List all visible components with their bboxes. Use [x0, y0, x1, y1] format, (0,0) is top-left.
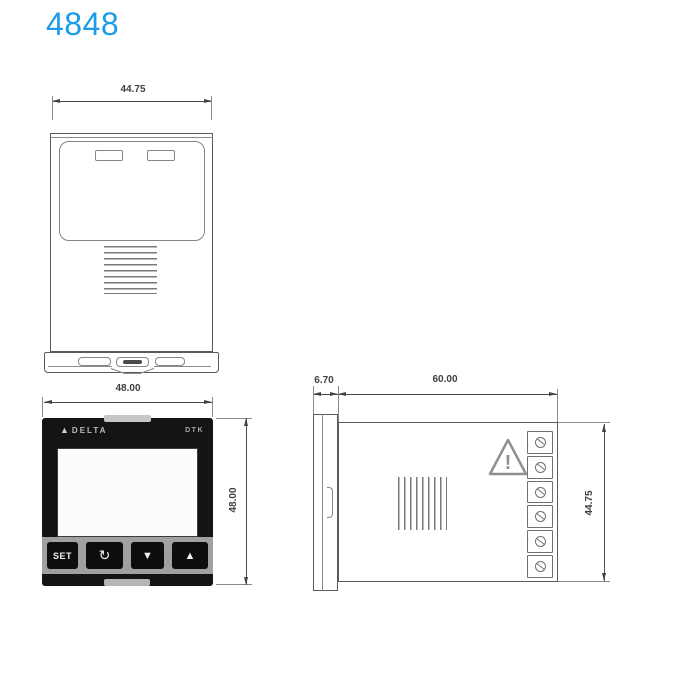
vent-ribs	[104, 246, 157, 294]
dim-arrow-down-icon	[244, 577, 248, 585]
extension-line	[557, 389, 558, 422]
bezel-inner-line	[154, 366, 211, 367]
screw-icon	[535, 462, 546, 473]
dimension-line	[44, 402, 212, 403]
front-width-dim-label: 48.00	[98, 383, 158, 395]
terminal-screw	[527, 431, 553, 454]
terminal-screw	[527, 555, 553, 578]
extension-line	[558, 581, 610, 582]
mount-tab-grip	[123, 360, 142, 364]
top-view-drawing: 44.75	[40, 82, 255, 382]
dim-arrow-right-icon	[330, 392, 338, 396]
model-label: DTK	[185, 427, 204, 434]
top-latch-tab	[104, 415, 151, 422]
warning-icon: !	[487, 437, 529, 477]
screw-icon	[535, 487, 546, 498]
screw-icon	[535, 511, 546, 522]
down-button: ▼	[131, 542, 164, 569]
dim-arrow-left-icon	[313, 392, 321, 396]
terminal-screw	[527, 530, 553, 553]
dimension-line	[52, 101, 212, 102]
screw-icon	[535, 437, 546, 448]
screw-icon	[535, 561, 546, 572]
front-height-dim-label: 48.00	[228, 470, 240, 530]
extension-line	[211, 96, 212, 120]
controller-front-panel: ▲ DELTA DTK SET↻▼▲	[42, 418, 213, 586]
front-button-strip: SET↻▼▲	[42, 537, 213, 574]
terminal-screw	[527, 481, 553, 504]
extension-line	[338, 386, 339, 422]
mount-tab	[155, 357, 185, 366]
up-button: ▲	[172, 542, 208, 569]
set-button: SET	[47, 542, 78, 569]
dim-arrow-left-icon	[338, 392, 346, 396]
body-depth-dim-label: 60.00	[415, 374, 475, 386]
extension-line	[558, 422, 610, 423]
dim-arrow-up-icon	[244, 418, 248, 426]
side-view-drawing: 6.70 60.00 ! 44.75	[300, 368, 630, 598]
bezel-side-outline	[313, 414, 338, 591]
dim-arrow-right-icon	[204, 400, 212, 404]
vent-slot	[95, 150, 123, 161]
page-title: 4848	[46, 6, 119, 43]
bezel-latch-bump	[327, 487, 333, 518]
extension-line	[42, 397, 43, 417]
bezel-face-line	[322, 414, 323, 591]
case-top-inner-line	[50, 137, 213, 138]
extension-line	[52, 96, 53, 120]
bezel-notch-line	[125, 373, 141, 374]
bezel-depth-dim-label: 6.70	[306, 375, 342, 387]
dim-arrow-down-icon	[602, 573, 606, 581]
datasheet-dimension-drawing: 4848 44.75 48.00	[0, 0, 684, 699]
dimension-line	[338, 394, 557, 395]
top-view-width-dim-label: 44.75	[103, 84, 163, 96]
front-view-drawing: 48.00 48.00 ▲ DELTA DTK SET↻▼▲	[30, 380, 260, 595]
dim-arrow-left-icon	[44, 400, 52, 404]
side-height-dim-label: 44.75	[584, 473, 596, 533]
terminal-screw	[527, 456, 553, 479]
mount-tab-center	[116, 357, 149, 367]
side-vent-ribs	[398, 477, 447, 530]
dim-arrow-up-icon	[602, 424, 606, 432]
vent-slot	[147, 150, 175, 161]
display-window	[57, 448, 198, 537]
extension-line	[313, 386, 314, 414]
bottom-latch-tab	[104, 579, 150, 586]
loop-button: ↻	[86, 542, 123, 569]
dimension-line	[246, 418, 247, 585]
dim-arrow-left-icon	[52, 99, 60, 103]
extension-line	[212, 397, 213, 417]
brand-logo: ▲ DELTA	[60, 425, 107, 435]
mount-tab	[78, 357, 111, 366]
dim-arrow-right-icon	[549, 392, 557, 396]
dimension-line	[604, 424, 605, 581]
screw-icon	[535, 536, 546, 547]
bezel-inner-line	[48, 366, 112, 367]
delta-triangle-icon: ▲	[60, 425, 69, 435]
warning-exclamation: !	[505, 452, 512, 474]
case-top-cover	[59, 141, 205, 241]
brand-label: DELTA	[72, 426, 107, 435]
terminal-screw	[527, 505, 553, 528]
terminal-block	[527, 431, 553, 578]
